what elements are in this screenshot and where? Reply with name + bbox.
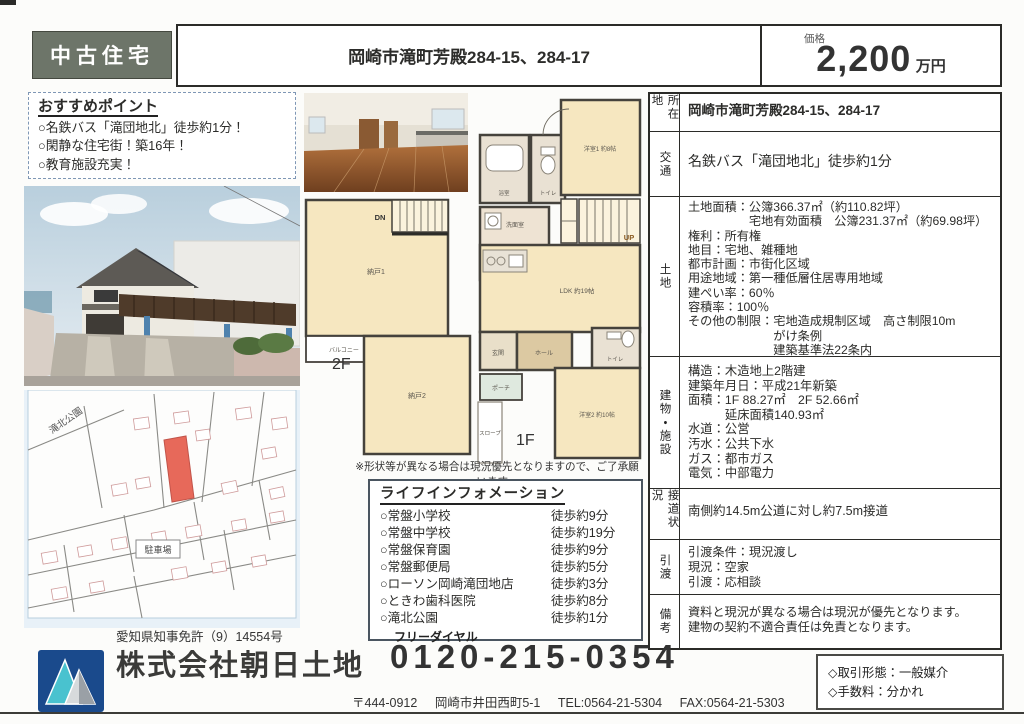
facility-name: ○常盤保育園 xyxy=(380,542,551,559)
detail-label: 交通 xyxy=(657,151,673,178)
room-label-toilet-1: トイレ xyxy=(540,191,557,197)
detail-line: 地目：宅地、雑種地 xyxy=(688,243,992,257)
room-label-ldk: LDK 約19帖 xyxy=(560,286,595,295)
property-details-table: 所在地 岡崎市滝町芳殿284-15、284-17 交通 名鉄バス「滝団地北」徒歩… xyxy=(648,92,1002,650)
detail-line: 岡崎市滝町芳殿284-15、284-17 xyxy=(688,103,992,119)
life-info-row: ○ときわ歯科医院 徒歩約8分 xyxy=(380,593,631,610)
facility-time: 徒歩約9分 xyxy=(551,508,631,525)
price-value: 2,200 xyxy=(816,38,911,79)
room-label-youshitsu2: 洋室2 約10帖 xyxy=(579,411,615,419)
detail-line: がけ条例 xyxy=(688,329,992,343)
room-label-dn: DN xyxy=(375,213,386,222)
facility-time: 徒歩約9分 xyxy=(551,542,631,559)
detail-line: 建物の契約不適合責任は免責となります。 xyxy=(688,620,992,635)
room-label-slope: スロープ xyxy=(479,430,501,437)
facility-name: ○常盤郵便局 xyxy=(380,559,551,576)
detail-label: 引渡 xyxy=(657,554,673,581)
life-info-title: ライフインフォメーション xyxy=(380,486,565,505)
phone-number: 0120-215-0354 xyxy=(390,638,679,676)
detail-line: 名鉄バス「滝団地北」徒歩約1分 xyxy=(688,154,992,168)
company-address-line: 〒444-0912 岡崎市井田西町5-1 TEL:0564-21-5304 FA… xyxy=(352,692,799,711)
room-label-bath: 浴室 xyxy=(498,189,510,197)
detail-line: 延床面積140.93㎡ xyxy=(688,408,992,423)
life-info-box: ライフインフォメーション ○常盤小学校 徒歩約9分 ○常盤中学校 徒歩約19分 … xyxy=(368,479,643,641)
detail-label: 所在地 xyxy=(649,94,681,131)
room-label-youshitsu1: 洋室1 約8帖 xyxy=(584,145,616,153)
room-label-balcony: バルコニー xyxy=(329,347,359,354)
detail-line: 建築基準法22条内 xyxy=(688,343,992,357)
life-info-row: ○常盤中学校 徒歩約19分 xyxy=(380,525,631,542)
scan-corner-mark xyxy=(0,0,16,5)
company-logo-icon xyxy=(38,650,104,712)
map-parking-label: 駐車場 xyxy=(144,544,171,555)
recommend-box: おすすめポイント ○名鉄バス「滝団地北」徒歩約1分！ ○閑静な住宅街！築16年！… xyxy=(28,92,296,179)
page-title: 岡崎市滝町芳殿284-15、284-17 xyxy=(176,24,762,87)
detail-line: その他の制限：宅地造成規制区域 高さ制限10m xyxy=(688,314,992,328)
recommend-point: ○教育施設充実！ xyxy=(38,156,286,174)
detail-line: 南側約14.5m公道に対し約7.5m接道 xyxy=(688,504,992,518)
detail-line: 都市計画：市街化区域 xyxy=(688,257,992,271)
deal-info-box: ◇取引形態：一般媒介 ◇手数料：分かれ xyxy=(816,654,1004,710)
room-label-hall: ホール xyxy=(535,350,553,357)
floor-label-2f: 2F xyxy=(332,356,351,374)
area-map: 滝北公園 駐車場 xyxy=(24,390,300,628)
life-info-row: ○ローソン岡崎滝団地店 徒歩約3分 xyxy=(380,576,631,593)
room-label-nando1: 納戸1 xyxy=(367,267,385,276)
detail-row-building: 建物・施設 構造：木造地上2階建 建築年月日：平成21年新築 面積：1F 88.… xyxy=(650,357,1000,489)
company-name: 株式会社朝日土地 xyxy=(116,642,364,684)
detail-line: ガス：都市ガス xyxy=(688,452,992,467)
detail-label: 備考 xyxy=(657,608,673,635)
detail-line: 現況：空家 xyxy=(688,560,992,575)
facility-time: 徒歩約8分 xyxy=(551,593,631,610)
category-badge: 中古住宅 xyxy=(32,31,172,79)
deal-type: ◇取引形態：一般媒介 xyxy=(828,664,992,683)
life-info-row: ○常盤保育園 徒歩約9分 xyxy=(380,542,631,559)
flyer-page: 中古住宅 岡崎市滝町芳殿284-15、284-17 価格 2,200 万円 おす… xyxy=(0,0,1024,724)
detail-label: 土地 xyxy=(657,263,673,290)
interior-photo xyxy=(304,93,468,192)
bottom-divider xyxy=(0,712,1024,714)
detail-row-remarks: 備考 資料と現況が異なる場合は現況が優先となります。 建物の契約不適合責任は免責… xyxy=(650,595,1000,648)
price-value-row: 2,200 万円 xyxy=(762,38,1000,80)
detail-label: 建物・施設 xyxy=(657,389,673,457)
detail-line: 電気：中部電力 xyxy=(688,466,992,481)
detail-row-transport: 交通 名鉄バス「滝団地北」徒歩約1分 xyxy=(650,132,1000,197)
price-unit: 万円 xyxy=(916,58,946,75)
floorplan-1f: 浴室 トイレ 洗面室 洋室1 約8帖 UP LDK 約19帖 玄関 xyxy=(477,95,644,465)
detail-line: 宅地有効面積 公簿231.37㎡（約69.98坪） xyxy=(688,214,992,228)
facility-time: 徒歩約3分 xyxy=(551,576,631,593)
room-label-senmen: 洗面室 xyxy=(506,221,524,229)
detail-line: 建築年月日：平成21年新築 xyxy=(688,379,992,394)
recommend-point: ○名鉄バス「滝団地北」徒歩約1分！ xyxy=(38,119,286,137)
facility-time: 徒歩約5分 xyxy=(551,559,631,576)
floor-label-1f: 1F xyxy=(516,432,535,450)
floorplan-2f: DN 納戸1 バルコニー 納戸2 xyxy=(304,196,472,458)
detail-line: 土地面積：公簿366.37㎡（約110.82坪） xyxy=(688,200,992,214)
detail-label: 接道状況 xyxy=(649,489,681,539)
detail-line: 構造：木造地上2階建 xyxy=(688,364,992,379)
facility-time: 徒歩約19分 xyxy=(551,525,631,542)
room-label-genkan: 玄関 xyxy=(492,349,504,357)
fax-number: FAX:0564-21-5303 xyxy=(680,696,785,710)
detail-row-land: 土地 土地面積：公簿366.37㎡（約110.82坪） 宅地有効面積 公簿231… xyxy=(650,197,1000,357)
postal-code: 〒444-0912 xyxy=(352,696,417,710)
detail-line: 容積率：100％ xyxy=(688,300,992,314)
detail-line: 水道：公営 xyxy=(688,422,992,437)
recommend-title: おすすめポイント xyxy=(38,98,158,117)
detail-line: 建ぺい率：60％ xyxy=(688,286,992,300)
detail-line: 権利：所有権 xyxy=(688,229,992,243)
detail-line: 汚水：公共下水 xyxy=(688,437,992,452)
life-info-row: ○滝北公園 徒歩約1分 xyxy=(380,610,631,627)
facility-name: ○常盤中学校 xyxy=(380,525,551,542)
recommend-point: ○閑静な住宅街！築16年！ xyxy=(38,137,286,155)
room-label-up: UP xyxy=(624,233,634,242)
room-label-porch: ポーチ xyxy=(492,384,510,392)
life-info-row: ○常盤郵便局 徒歩約5分 xyxy=(380,559,631,576)
detail-line: 面積：1F 88.27㎡ 2F 52.66㎡ xyxy=(688,393,992,408)
facility-name: ○常盤小学校 xyxy=(380,508,551,525)
facility-name: ○ローソン岡崎滝団地店 xyxy=(380,576,551,593)
detail-line: 資料と現況が異なる場合は現況が優先となります。 xyxy=(688,605,992,620)
detail-line: 引渡：応相談 xyxy=(688,575,992,590)
street-address: 岡崎市井田西町5-1 xyxy=(435,696,541,710)
room-label-toilet-2: トイレ xyxy=(607,357,624,363)
detail-row-handover: 引渡 引渡条件：現況渡し 現況：空家 引渡：応相談 xyxy=(650,540,1000,595)
detail-row-road: 接道状況 南側約14.5m公道に対し約7.5m接道 xyxy=(650,489,1000,540)
fee-type: ◇手数料：分かれ xyxy=(828,683,992,702)
detail-row-location: 所在地 岡崎市滝町芳殿284-15、284-17 xyxy=(650,94,1000,132)
facility-name: ○滝北公園 xyxy=(380,610,551,627)
room-label-nando2: 納戸2 xyxy=(408,391,426,400)
detail-line: 用途地域：第一種低層住居専用地域 xyxy=(688,271,992,285)
tel-number: TEL:0564-21-5304 xyxy=(558,696,662,710)
detail-line: 引渡条件：現況渡し xyxy=(688,545,992,560)
facility-time: 徒歩約1分 xyxy=(551,610,631,627)
life-info-row: ○常盤小学校 徒歩約9分 xyxy=(380,508,631,525)
exterior-photo xyxy=(24,186,300,386)
price-box: 価格 2,200 万円 xyxy=(760,24,1002,87)
facility-name: ○ときわ歯科医院 xyxy=(380,593,551,610)
